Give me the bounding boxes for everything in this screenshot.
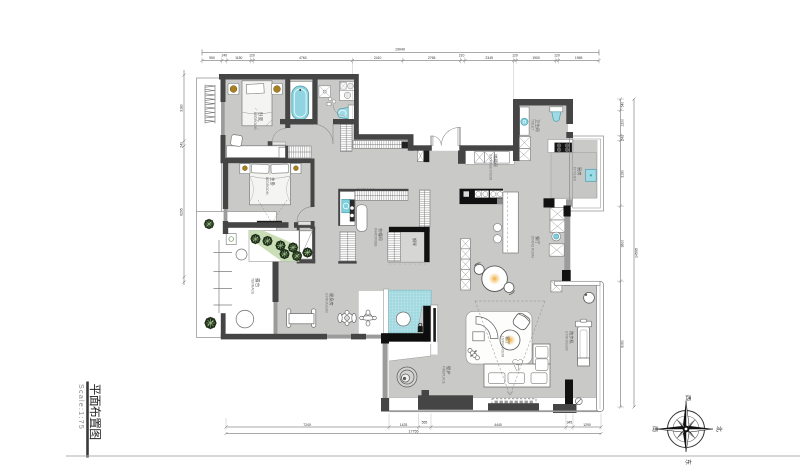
svg-text:120: 120 [554,54,560,58]
svg-text:3190: 3190 [621,170,625,178]
svg-text:14595: 14595 [634,248,638,258]
svg-text:240: 240 [180,142,184,148]
svg-text:LIVING ROOM: LIVING ROOM [500,336,504,358]
svg-text:6060: 6060 [621,340,625,348]
svg-text:南: 南 [651,426,659,432]
svg-text:WARDROBE: WARDROBE [373,228,377,247]
svg-text:钢琴: 钢琴 [412,238,418,246]
svg-text:1425: 1425 [400,423,408,427]
svg-text:东: 东 [684,459,692,465]
svg-text:540: 540 [621,102,625,108]
svg-text:西: 西 [684,395,691,401]
svg-text:555: 555 [422,420,428,424]
svg-text:TOILET: TOILET [530,119,534,130]
svg-text:KITCHEN: KITCHEN [572,167,576,182]
svg-text:3180: 3180 [180,104,184,112]
svg-text:TERRACE: TERRACE [250,278,254,295]
svg-text:240: 240 [621,135,625,141]
svg-text:平面布置图: 平面布置图 [88,384,102,440]
svg-text:北: 北 [715,426,723,432]
svg-text:DINING ROOM: DINING ROOM [530,236,534,258]
svg-text:240: 240 [221,54,227,58]
svg-text:GYMNASIUM: GYMNASIUM [564,331,568,351]
svg-text:1900: 1900 [532,56,540,60]
svg-text:Scale:1:75: Scale:1:75 [77,384,86,430]
svg-text:950: 950 [209,56,215,60]
svg-text:3600: 3600 [621,240,625,248]
svg-text:BEDROOM: BEDROOM [265,177,269,195]
svg-text:STORAGE ROOM: STORAGE ROOM [488,154,492,181]
svg-text:2410: 2410 [374,56,382,60]
svg-text:1200: 1200 [621,119,625,127]
svg-text:1150: 1150 [235,56,242,60]
svg-text:7240: 7240 [303,423,311,427]
svg-text:6295: 6295 [180,208,184,216]
svg-text:120: 120 [512,54,518,58]
svg-text:1965: 1965 [575,56,583,60]
svg-text:2345: 2345 [485,56,493,60]
svg-text:FIREPLACE: FIREPLACE [441,366,445,384]
svg-text:4440: 4440 [494,423,502,427]
svg-text:19040: 19040 [395,48,405,52]
svg-text:345: 345 [567,420,573,424]
svg-text:BEDROOM: BEDROOM [253,112,257,130]
svg-text:1290: 1290 [583,423,591,427]
svg-text:120: 120 [249,54,255,58]
svg-text:17755: 17755 [409,430,419,434]
svg-text:2765: 2765 [428,56,436,60]
svg-text:4760: 4760 [299,56,307,60]
svg-text:GYMNASIUM: GYMNASIUM [324,293,328,313]
svg-text:210: 210 [459,54,465,58]
